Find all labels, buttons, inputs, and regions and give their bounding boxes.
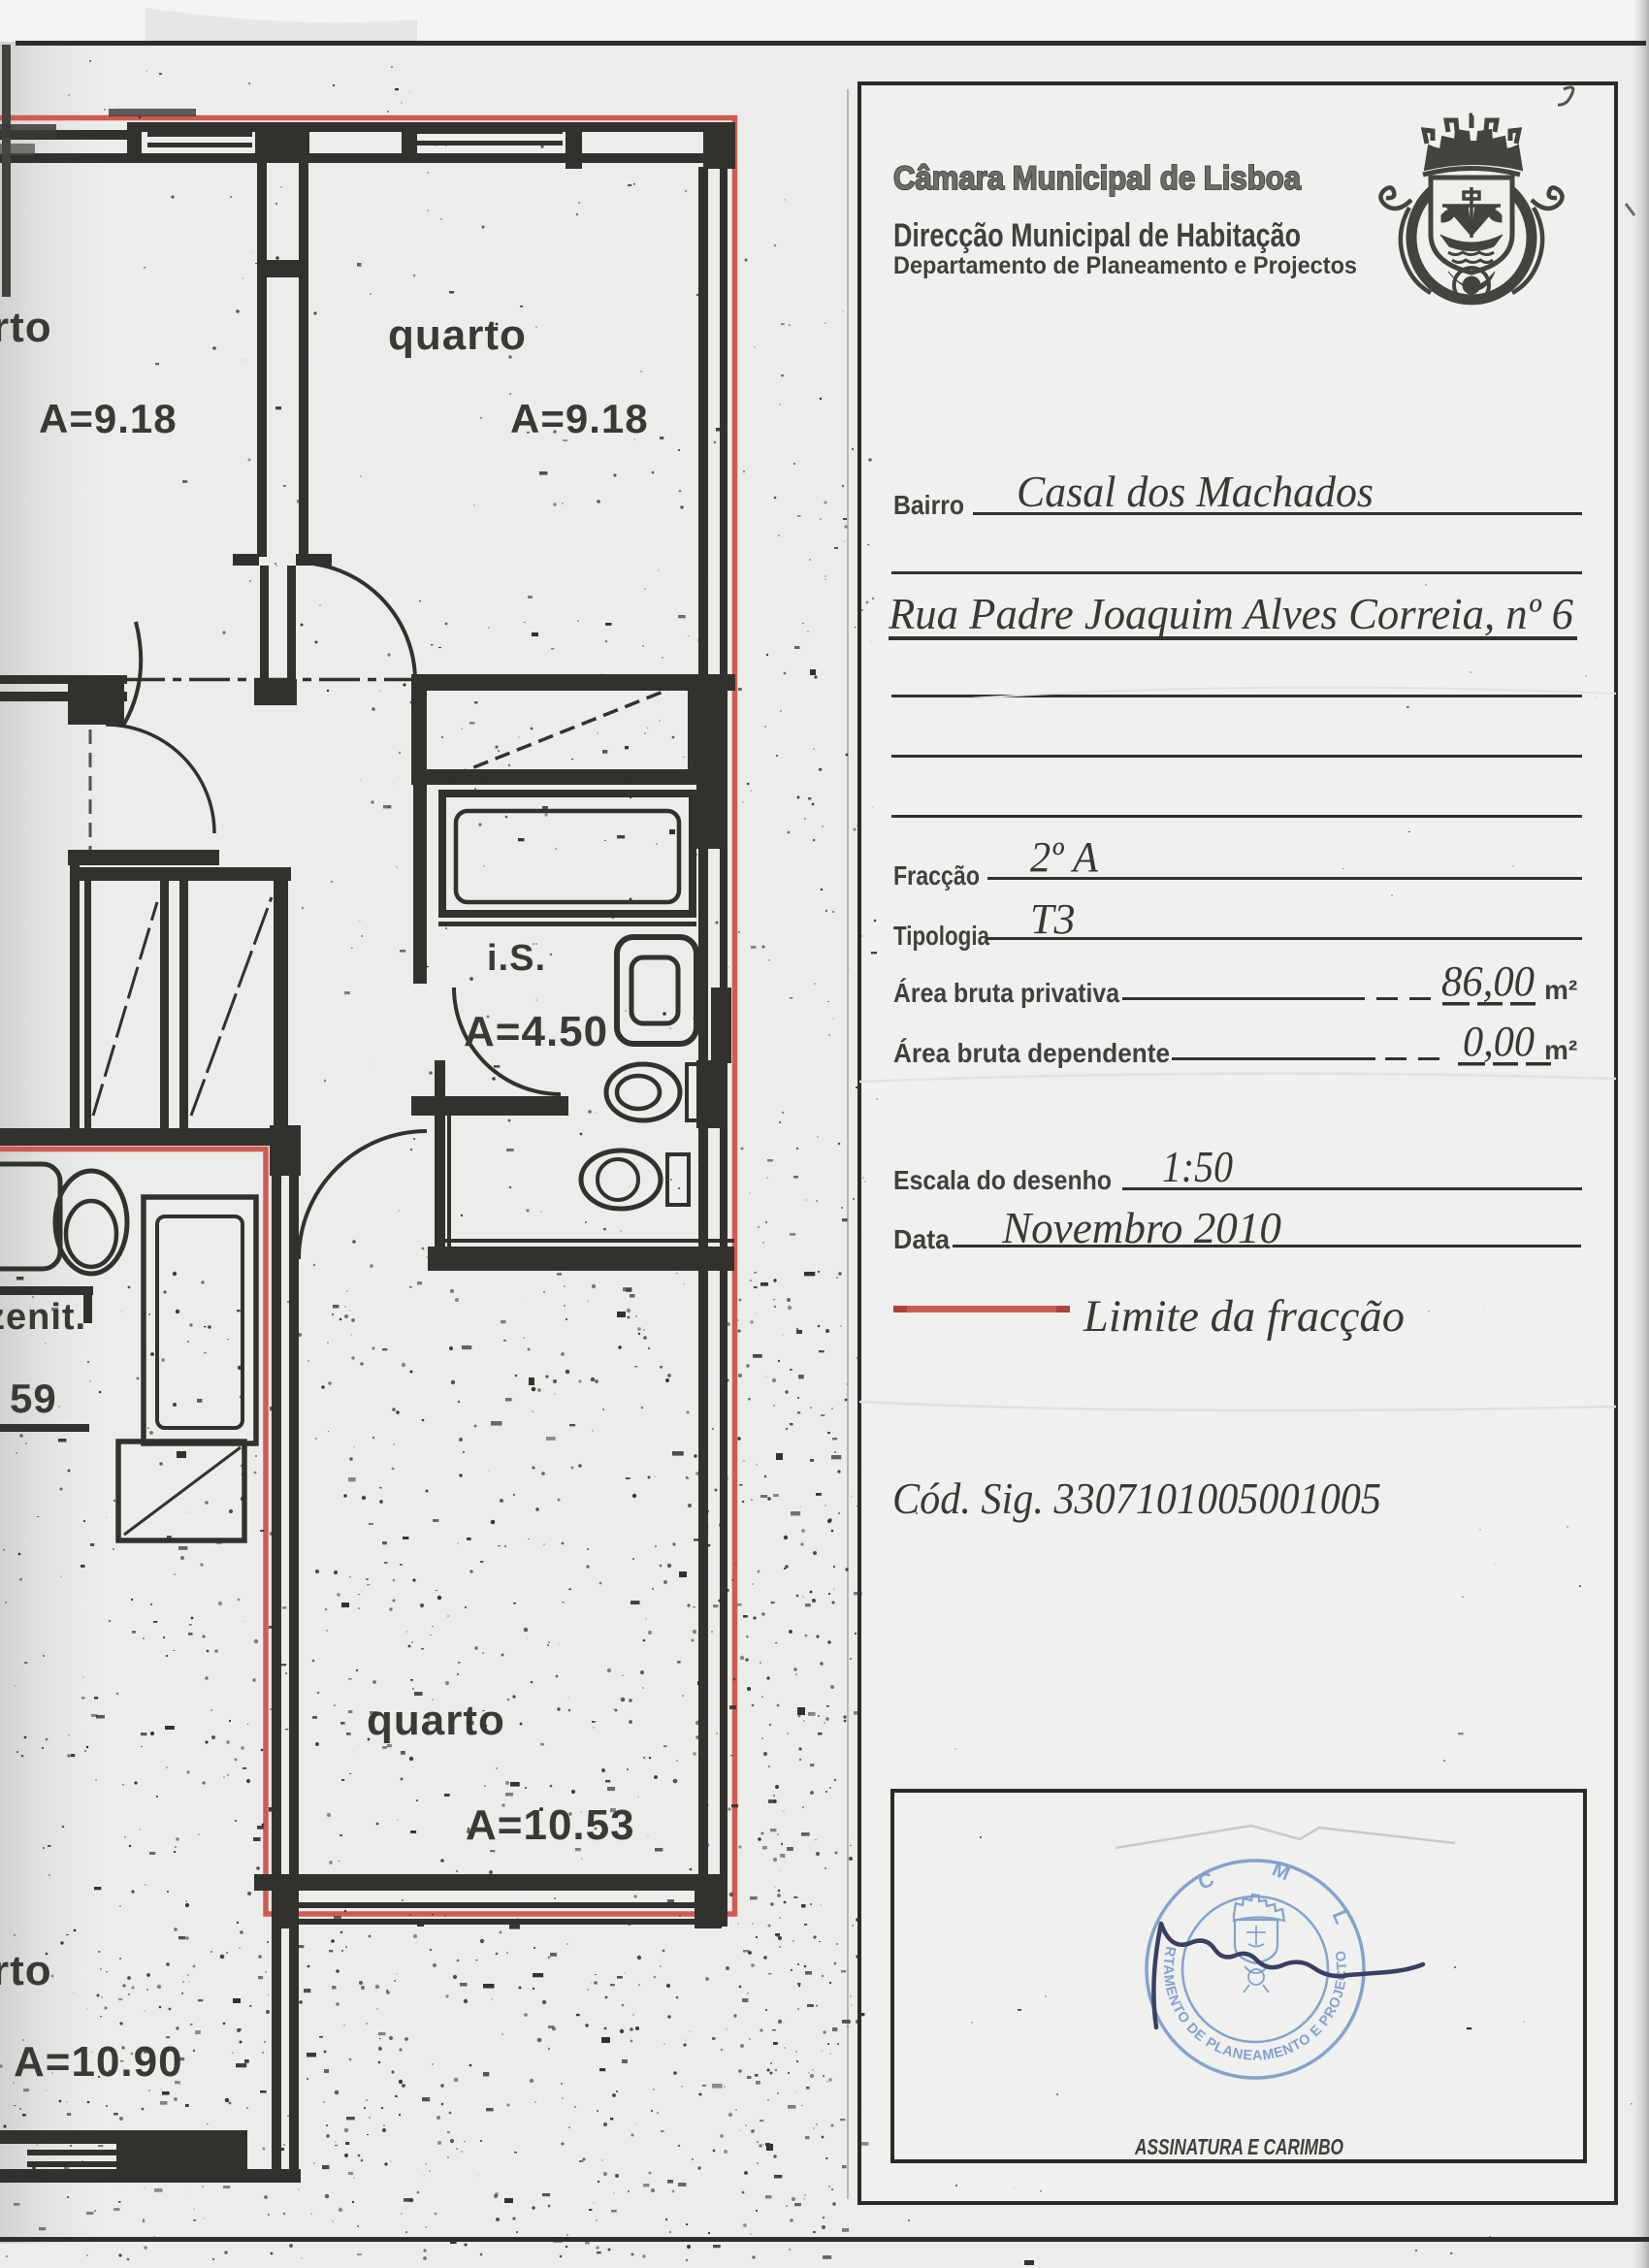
- svg-text:T3: T3: [1030, 895, 1075, 943]
- svg-text:Tipologia: Tipologia: [893, 921, 989, 951]
- svg-text:A=9.18: A=9.18: [39, 396, 178, 441]
- svg-text:A=4.50: A=4.50: [464, 1008, 608, 1055]
- svg-text:Limite da fracção: Limite da fracção: [1083, 1291, 1405, 1342]
- svg-text:zenit.: zenit.: [0, 1297, 86, 1338]
- svg-text:Direcção Municipal de Habitaçã: Direcção Municipal de Habitação: [893, 217, 1301, 254]
- svg-text:Câmara Municipal de Lisboa: Câmara Municipal de Lisboa: [893, 160, 1302, 197]
- svg-text:rto: rto: [0, 1947, 52, 1994]
- svg-text:Bairro: Bairro: [893, 490, 964, 520]
- svg-text:quarto: quarto: [388, 311, 527, 359]
- svg-text:quarto: quarto: [367, 1697, 505, 1744]
- svg-text:A=10.53: A=10.53: [466, 1801, 635, 1849]
- svg-text:2º A: 2º A: [1030, 833, 1099, 881]
- svg-text:Rua Padre Joaquim Alves Correi: Rua Padre Joaquim Alves Correia, nº 6: [888, 589, 1573, 638]
- svg-text:A=9.18: A=9.18: [510, 396, 649, 441]
- svg-text:Cód. Sig. 3307101005001005: Cód. Sig. 3307101005001005: [892, 1474, 1381, 1523]
- svg-text:Escala do desenho: Escala do desenho: [893, 1165, 1112, 1195]
- svg-text:Departamento de Planeamento e: Departamento de Planeamento e Projectos: [893, 252, 1357, 279]
- svg-text:Fracção: Fracção: [893, 860, 980, 891]
- svg-text:A=10.90: A=10.90: [14, 2038, 183, 2086]
- svg-text:Área bruta dependente: Área bruta dependente: [893, 1038, 1170, 1068]
- svg-text:86,00: 86,00: [1441, 957, 1535, 1005]
- svg-text:Data: Data: [893, 1224, 950, 1254]
- svg-text:ASSINATURA E CARIMBO: ASSINATURA E CARIMBO: [1134, 2134, 1343, 2159]
- svg-text:m²: m²: [1544, 1035, 1577, 1065]
- svg-text:Área bruta privativa: Área bruta privativa: [893, 978, 1119, 1008]
- svg-text:Casal dos Machados: Casal dos Machados: [1017, 467, 1374, 516]
- svg-text:0,00: 0,00: [1463, 1018, 1535, 1065]
- svg-text:rto: rto: [0, 304, 52, 351]
- svg-text:59: 59: [10, 1376, 57, 1421]
- svg-text:m²: m²: [1544, 975, 1577, 1005]
- svg-text:1:50: 1:50: [1162, 1142, 1233, 1191]
- svg-text:i.S.: i.S.: [487, 938, 546, 979]
